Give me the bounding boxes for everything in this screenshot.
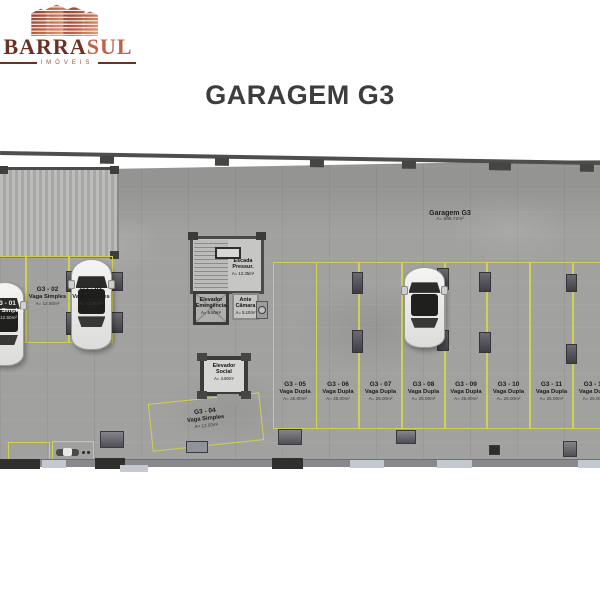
pillar [278, 429, 302, 445]
ante-chamber-label: Ante Câmara A= 5.10m² [230, 297, 261, 315]
spot-label-g3-03: G3 - 03 Vaga Simples A= 12.50m² [69, 286, 113, 307]
screenshot-root: BARRASUL IMÓVEIS GARAGEM G3 [0, 0, 600, 600]
pillar [479, 332, 491, 353]
pillar [352, 272, 363, 294]
pillar [479, 272, 491, 292]
wall-pillar [489, 162, 511, 170]
motorcycle-top-view [56, 446, 90, 459]
pillar [563, 441, 577, 457]
top-wall [0, 151, 600, 165]
pillar [100, 431, 124, 448]
pillar [111, 312, 123, 333]
pillar [566, 344, 577, 364]
pillar [352, 330, 363, 353]
garage-area-label: Garagem G3 A= 698.72m² [400, 210, 500, 222]
spot-label-g3-01: G3 - 01 Vaga Simples A= 12.50m² [0, 300, 26, 321]
car-top-view [404, 267, 445, 348]
pillar [186, 441, 208, 453]
pillar [489, 445, 500, 455]
parking-spot-g3-10: G3 - 10Vaga DuplaA= 25.00m² [486, 262, 531, 429]
spot-label-g3-04: G3 - 04 Vaga Simples A= 12.50m² [150, 402, 262, 434]
stairs-label: Escada Pressur. A= 12.35m² [222, 258, 264, 276]
wall-pillar [580, 164, 594, 172]
ramp-post [110, 166, 119, 174]
wall-pillar [215, 158, 229, 166]
emergency-elevator-label: Elevador Emergência A= 6.50m² [191, 297, 231, 315]
pillar [396, 430, 416, 444]
parking-spot-g3-05: G3 - 05Vaga DuplaA= 25.00m² [273, 262, 317, 429]
social-elevator-label: Elevador Social A= 4.60m² [202, 363, 246, 381]
pillar [566, 274, 577, 292]
floor-plan: G3 - 01 Vaga Simples A= 12.50m² G3 - 02 … [0, 0, 600, 600]
ramp-area [0, 167, 119, 258]
ramp-post [0, 166, 8, 174]
wall-pillar [402, 161, 416, 169]
car-top-view [0, 282, 24, 366]
spot-label-g3-02: G3 - 02 Vaga Simples A= 12.50m² [26, 286, 69, 307]
bottom-wall [0, 459, 600, 467]
wall-pillar [100, 156, 114, 164]
parking-spot-g3-07: G3 - 07Vaga DuplaA= 25.00m² [358, 262, 403, 429]
wall-pillar [310, 159, 324, 167]
